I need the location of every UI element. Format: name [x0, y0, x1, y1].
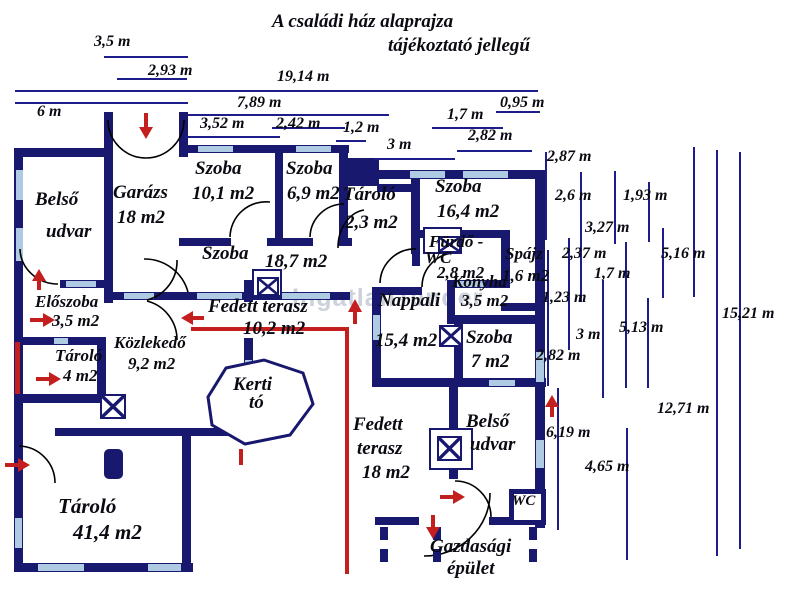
room-label-belso-udvar-bottom: Belső — [466, 412, 509, 431]
dimension-line — [545, 152, 547, 240]
room-label-spajz: Spájz — [505, 245, 543, 262]
dim-label: 1,7 m — [594, 266, 630, 282]
flue-icon — [439, 325, 463, 347]
wall-segment — [55, 428, 254, 436]
plan-subtitle: tájékoztató jellegű — [388, 36, 530, 55]
dim-label: 1,2 m — [343, 120, 379, 136]
dimension-line — [496, 111, 540, 113]
room-label-kozlekedo: Közlekedő — [114, 334, 186, 351]
dimension-line — [693, 147, 695, 297]
room-label-szoba164: Szoba — [435, 177, 481, 196]
dim-label: 3,52 m — [200, 116, 244, 132]
room-label-tarolo23: Tároló — [343, 185, 396, 204]
window — [198, 146, 233, 152]
flue-icon — [437, 436, 462, 461]
door-arc — [108, 120, 146, 158]
flue-icon — [100, 394, 126, 419]
room-label-fedett-terasz-18: Fedett — [353, 415, 403, 434]
dimension-line — [625, 242, 627, 388]
dimension-line — [104, 56, 188, 58]
room-label-nappali: Nappali — [378, 291, 440, 310]
dimension-line — [602, 280, 604, 398]
room-area-szoba164: 16,4 m2 — [437, 202, 499, 221]
wall-segment — [14, 394, 104, 403]
wall-segment — [375, 517, 419, 525]
window — [148, 564, 181, 571]
dim-label: 3,5 m — [94, 34, 130, 50]
room-label-tarolo414: Tároló — [58, 496, 116, 517]
dim-label: 6,19 m — [546, 425, 590, 441]
window — [15, 518, 22, 548]
window — [16, 170, 23, 200]
dimension-line — [457, 150, 532, 152]
room-label-tarolo4: Tároló — [55, 347, 102, 364]
dim-label: 2,6 m — [555, 188, 591, 204]
dim-label: 2,42 m — [276, 116, 320, 132]
window — [489, 380, 515, 386]
dim-label: 1,23 m — [542, 290, 586, 306]
room-area-spajz: 1,6 m2 — [502, 267, 549, 284]
dim-label: 2,37 m — [562, 246, 606, 262]
room-label-fedett-terasz-18: terasz — [357, 439, 402, 458]
room-label-szoba69: Szoba — [286, 159, 332, 178]
window — [296, 146, 331, 152]
entrance-arrow-right — [440, 490, 465, 504]
floor-plan: IngatlanTender — [0, 0, 800, 600]
dim-label: 2,93 m — [148, 63, 192, 79]
pond-label: tó — [249, 393, 264, 412]
outbuilding-label: Gazdasági — [430, 537, 511, 556]
room-label-konyha: Konyha — [452, 273, 507, 290]
window — [16, 228, 23, 261]
dim-label: 2,87 m — [547, 149, 591, 165]
dim-label: 19,14 m — [277, 69, 329, 85]
outbuilding-label: épület — [447, 559, 495, 578]
dimension-line — [374, 158, 455, 160]
dimension-line — [185, 136, 280, 138]
room-label-garazs: Garázs — [113, 183, 168, 202]
entrance-arrow-left — [181, 311, 204, 325]
dim-label: 1,93 m — [623, 188, 667, 204]
room-label-szoba101: Szoba — [195, 159, 241, 178]
dimension-line — [739, 152, 741, 549]
door-arc — [380, 249, 416, 283]
furniture-object — [104, 449, 123, 479]
plan-title: A családi ház alaprajza — [272, 12, 453, 31]
dim-label: 3 m — [576, 327, 600, 343]
dim-label: 7,89 m — [237, 95, 281, 111]
wall-segment — [338, 238, 352, 246]
room-area-szoba7: 7 m2 — [471, 352, 510, 371]
room-area-szoba101: 10,1 m2 — [192, 184, 254, 203]
room-area-fedett-terasz-102: 10,2 m2 — [243, 319, 305, 338]
dim-label: 2,82 m — [536, 348, 580, 364]
dim-label: 3 m — [387, 137, 411, 153]
room-area-szoba69: 6,9 m2 — [287, 184, 340, 203]
dimension-line — [647, 298, 649, 388]
room-label-szoba7: Szoba — [466, 328, 512, 347]
wall-segment — [104, 112, 113, 303]
door-arc — [455, 481, 491, 517]
dim-label: 5,16 m — [661, 246, 705, 262]
red-path-line — [345, 327, 349, 574]
door-arc — [20, 249, 58, 284]
room-area-tarolo23: 2,3 m2 — [345, 213, 398, 232]
dim-label: 6 m — [37, 104, 61, 120]
dimension-line — [716, 150, 718, 556]
room-label-fedett-terasz-102: Fedett terasz — [208, 297, 308, 316]
window — [124, 293, 154, 299]
wall-segment — [182, 428, 191, 572]
door-arc — [19, 446, 55, 483]
entrance-arrow-down — [139, 113, 153, 139]
dimension-line — [662, 228, 664, 298]
room-area-szoba187: 18,7 m2 — [265, 252, 327, 271]
window — [66, 281, 96, 287]
dimension-line — [15, 90, 538, 92]
dimension-line — [336, 140, 366, 142]
room-area-fedett-terasz-18: 18 m2 — [362, 463, 410, 482]
flue-icon — [257, 277, 279, 296]
dim-label: 15,21 m — [722, 306, 774, 322]
room-label-belso-udvar: Belső — [35, 190, 78, 209]
door-arc — [144, 259, 188, 292]
dim-label: 4,65 m — [585, 459, 629, 475]
room-label-szoba187: Szoba — [202, 244, 248, 263]
window — [536, 440, 544, 468]
room-label-wc: WC — [512, 494, 535, 509]
red-wall-mark — [15, 342, 20, 394]
room-label-eloszoba: Előszoba — [35, 293, 98, 310]
wall-segment — [412, 230, 420, 266]
room-area-garazs: 18 m2 — [117, 208, 165, 227]
dim-label: 12,71 m — [657, 401, 709, 417]
dim-label: 1,7 m — [447, 107, 483, 123]
room-area-tarolo4: 4 m2 — [63, 367, 97, 384]
dim-label: 2,82 m — [468, 128, 512, 144]
window — [54, 338, 68, 344]
entrance-arrow-right — [36, 372, 61, 386]
wall-segment — [372, 378, 546, 387]
red-wall-mark — [239, 449, 243, 465]
room-area-eloszoba: 3,5 m2 — [52, 312, 99, 329]
wall-segment — [14, 148, 110, 157]
room-label-belso-udvar-bottom: udvar — [470, 435, 515, 454]
room-area-nappali: 15,4 m2 — [375, 331, 437, 350]
dim-label: 3,27 m — [585, 220, 629, 236]
window — [38, 564, 84, 571]
dim-label: 5,13 m — [619, 320, 663, 336]
entrance-arrow-up — [32, 269, 46, 290]
room-area-konyha: 3,5 m2 — [461, 292, 508, 309]
dimension-line — [557, 388, 559, 530]
door-arc — [230, 202, 270, 237]
dim-label: 0,95 m — [500, 95, 544, 111]
room-area-kozlekedo: 9,2 m2 — [128, 355, 175, 372]
room-label-belso-udvar: udvar — [46, 222, 91, 241]
wall-segment — [275, 153, 283, 246]
wall-segment — [267, 238, 313, 246]
room-area-tarolo414: 41,4 m2 — [73, 522, 142, 543]
dimension-line — [626, 428, 628, 560]
